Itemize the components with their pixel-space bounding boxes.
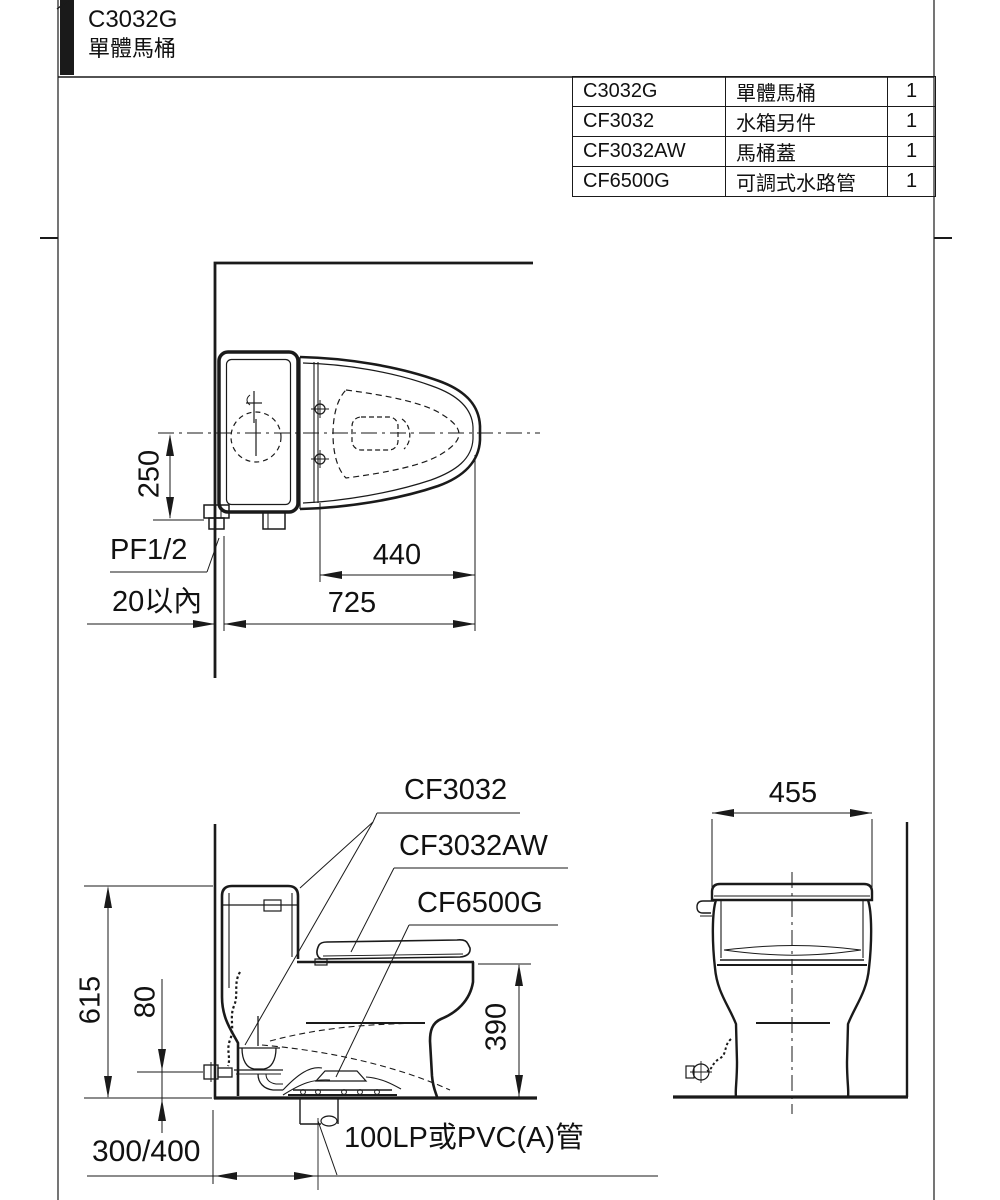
tank-side [222,886,298,1096]
part-qty: 1 [888,167,936,197]
callout-tank-parts: CF3032 [404,776,507,805]
drain-leader [318,1121,337,1175]
table-row: CF6500G 可調式水路管 1 [573,167,936,197]
sheet-product-name: 單體馬桶 [88,38,176,60]
part-code: CF6500G [573,167,726,197]
tank-plan [219,352,298,529]
dim-label-725: 725 [328,589,376,618]
table-row: CF3032 水箱另件 1 [573,107,936,137]
tank-front [697,884,872,1097]
dim-label-80: 80 [132,986,161,1018]
drain-pipe-note: 100LP或PVC(A)管 [344,1124,584,1153]
dim-label-390: 390 [483,1003,512,1051]
table-row: CF3032AW 馬桶蓋 1 [573,137,936,167]
table-row: C3032G 單體馬桶 1 [573,77,936,107]
part-code: C3032G [573,77,726,107]
front-view [673,809,908,1114]
drawing-sheet: C3032G 單體馬桶 C3032G 單體馬桶 1 CF3032 水箱另件 1 … [0,0,1000,1200]
flush-lever [697,901,714,913]
wall-gap-label: 20以內 [112,588,202,617]
part-qty: 1 [888,137,936,167]
bowl-side [262,940,474,1097]
dim-wall-gap [87,620,215,628]
part-qty: 1 [888,107,936,137]
callout-water-pipe: CF6500G [417,889,543,918]
parts-table: C3032G 單體馬桶 1 CF3032 水箱另件 1 CF3032AW 馬桶蓋… [572,76,936,197]
part-name: 水箱另件 [726,107,888,137]
part-name: 可調式水路管 [726,167,888,197]
part-code: CF3032 [573,107,726,137]
flush-valve-side [242,1048,276,1069]
sheet-model-number: C3032G [88,8,177,32]
part-qty: 1 [888,77,936,107]
part-code: CF3032AW [573,137,726,167]
dim-label-455: 455 [769,779,817,808]
dim-label-615: 615 [77,976,106,1024]
part-name: 馬桶蓋 [726,137,888,167]
supply-fitting-plan [204,505,229,529]
supply-thread-label: PF1/2 [110,536,187,565]
callout-seat-cover: CF3032AW [399,832,548,861]
dim-label-440: 440 [373,541,421,570]
dim-label-250: 250 [136,450,165,498]
supply-front [686,1039,731,1083]
title-block-bar [60,0,74,75]
rough-in-label: 300/400 [92,1137,200,1167]
part-name: 單體馬桶 [726,77,888,107]
